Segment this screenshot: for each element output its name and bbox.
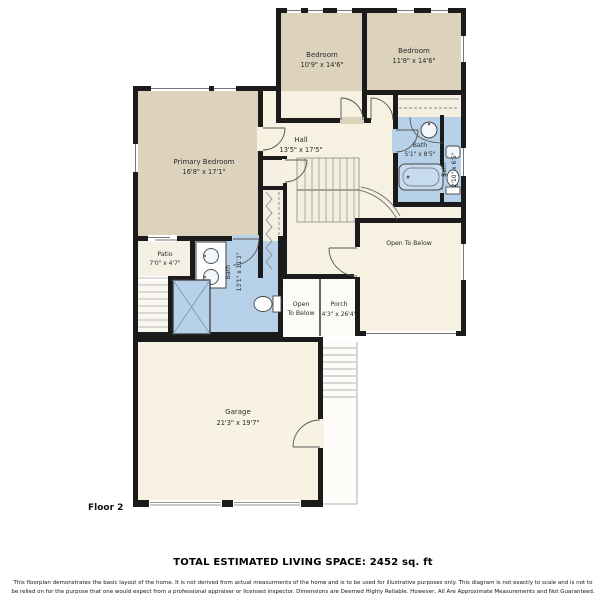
window (461, 36, 466, 62)
bedroom-b-label: Bedroom (398, 47, 430, 55)
garage-door (149, 500, 222, 507)
bath-primary-dims: 13'1" x 11'3" (237, 253, 243, 292)
floor-label: Floor 2 (88, 503, 123, 513)
garage-label: Garage (225, 408, 251, 416)
garage-door (233, 500, 301, 507)
closet-linen-area (398, 95, 461, 117)
bedroom-a-dims: 10'9" x 14'6" (301, 61, 344, 69)
window (133, 144, 138, 172)
window (366, 331, 456, 336)
sliding-door (148, 235, 177, 242)
window (337, 8, 352, 13)
bath-corner-label: Bath (442, 163, 448, 177)
hall-dims: 13'5" x 17'5" (280, 146, 323, 154)
porch-divider (319, 279, 321, 336)
total-living-space: TOTAL ESTIMATED LIVING SPACE: 2452 sq. f… (0, 557, 606, 568)
porch-stair-area (321, 342, 357, 502)
primary-bedroom-dims: 16'8" x 17'1" (183, 168, 226, 176)
garage-dims: 21'3" x 19'7" (217, 419, 260, 427)
patio-label: Patio (157, 251, 172, 258)
bedroom-a-label: Bedroom (306, 51, 338, 59)
hall-label: Hall (294, 136, 307, 144)
floorplan-drawing: Bedroom 10'9" x 14'6" Bedroom 11'8" x 14… (0, 0, 606, 540)
window (461, 148, 466, 176)
window (214, 86, 236, 91)
patio-dims: 7'0" x 4'7" (150, 261, 181, 267)
disclaimer-line-1: This floorplan demonstrates the basic la… (0, 579, 606, 588)
open-to-below-large-label: Open To Below (386, 240, 432, 247)
hall-staircase (297, 158, 359, 222)
open-to-below-small-label-1: Open (293, 301, 310, 308)
porch-label: Porch (330, 301, 347, 308)
window (287, 8, 301, 13)
window (397, 8, 414, 13)
porch-dims: 4'3" x 26'4" (322, 312, 357, 318)
disclaimer-line-2: be relied on for the purpose that one wo… (0, 588, 606, 597)
patio-deck-area (137, 281, 168, 336)
patio-area (138, 241, 190, 276)
bath-corner-dims: 2'10" x 6'5" (452, 152, 458, 187)
shower (173, 280, 210, 334)
bath-primary-label: Bath (225, 265, 232, 279)
bathtub (399, 164, 443, 190)
disclaimer: This floorplan demonstrates the basic la… (0, 579, 606, 596)
window (431, 8, 448, 13)
open-to-below-small-label-2: To Below (286, 310, 314, 317)
floorplan-page: Bedroom 10'9" x 14'6" Bedroom 11'8" x 14… (0, 0, 606, 600)
window (308, 8, 323, 13)
bedroom-b-dims: 11'8" x 14'6" (393, 57, 436, 65)
bath-hall-dims: 5'1" x 8'5" (405, 152, 436, 158)
window (151, 86, 209, 91)
window (461, 244, 466, 280)
toilet (254, 296, 281, 312)
hall-lower-area (287, 223, 355, 276)
primary-bedroom-label: Primary Bedroom (174, 158, 235, 166)
bath-hall-label: Bath (413, 142, 427, 149)
